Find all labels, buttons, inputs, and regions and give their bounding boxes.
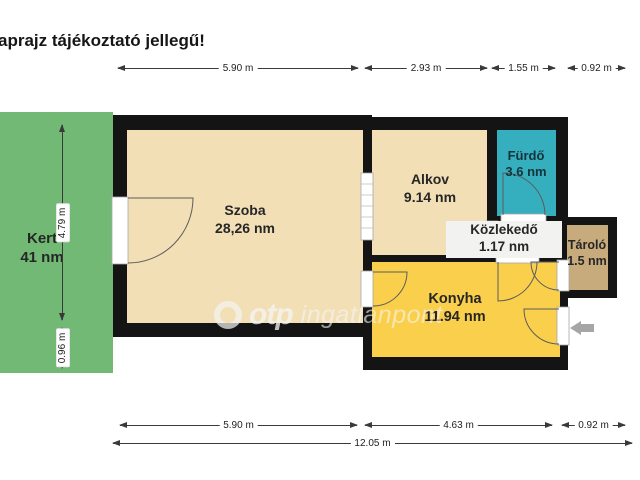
door-jamb-entrance: [557, 307, 569, 345]
door-swing-kert-szoba: [128, 198, 193, 263]
dim-top-3-label: 1.55 m: [504, 62, 543, 75]
furdo-name: Fürdő: [495, 148, 557, 164]
dim-total-label: 12.05 m: [350, 437, 394, 450]
dim-left-2-label: 0.96 m: [56, 329, 70, 368]
alkov-name: Alkov: [375, 171, 485, 189]
szoba-name: Szoba: [185, 202, 305, 220]
tarolo-area: 1.5 nm: [561, 254, 613, 270]
dim-bottom-2: 4.63 m: [365, 425, 552, 426]
dim-top-3: 1.55 m: [492, 68, 555, 69]
dim-left-1: 4.79 m: [62, 125, 63, 320]
tarolo-label: Tároló 1.5 nm: [561, 238, 613, 269]
dim-bottom-2-label: 4.63 m: [439, 419, 478, 432]
dim-left-1-label: 4.79 m: [56, 203, 70, 242]
door-jamb-szoba-konyha: [361, 271, 373, 307]
szoba-label: Szoba 28,26 nm: [185, 202, 305, 237]
dim-bottom-3: 0.92 m: [562, 425, 625, 426]
konyha-name: Konyha: [395, 290, 515, 308]
garden-area-value: 41 nm: [5, 249, 79, 268]
alkov-area: 9.14 nm: [375, 189, 485, 207]
dim-top-2-label: 2.93 m: [407, 62, 446, 75]
dim-top-4-label: 0.92 m: [577, 62, 616, 75]
opening-szoba-alkov: [361, 173, 373, 240]
kozlekedo-area: 1.17 nm: [446, 239, 562, 256]
alkov-label: Alkov 9.14 nm: [375, 171, 485, 206]
konyha-label: Konyha 11.94 nm: [395, 290, 515, 326]
door-swing-konyha-tarolo: [531, 262, 559, 290]
furdo-area: 3.6 nm: [495, 164, 557, 180]
furdo-label: Fürdő 3.6 nm: [495, 148, 557, 181]
dim-top-1-label: 5.90 m: [219, 62, 258, 75]
dim-bottom-1-label: 5.90 m: [219, 419, 258, 432]
dim-top-4: 0.92 m: [568, 68, 625, 69]
kozlekedo-label: Közlekedő 1.17 nm: [446, 221, 562, 258]
dim-bottom-3-label: 0.92 m: [574, 419, 613, 432]
dim-top-1: 5.90 m: [118, 68, 358, 69]
tarolo-name: Tároló: [561, 238, 613, 254]
dim-top-2: 2.93 m: [365, 68, 487, 69]
szoba-area: 28,26 nm: [185, 220, 305, 238]
dim-left-2: 0.96 m: [62, 328, 63, 368]
entrance-arrow-icon: [570, 321, 594, 335]
konyha-area: 11.94 nm: [395, 308, 515, 326]
entrance-arrow-shaft: [581, 324, 594, 332]
door-jamb-kert-szoba: [112, 197, 128, 264]
dim-total-width: 12.05 m: [113, 443, 632, 444]
door-swing-entrance: [524, 309, 559, 344]
floor-plan-canvas: aprajz tájékoztató jellegű!: [0, 0, 640, 480]
dim-bottom-1: 5.90 m: [120, 425, 357, 426]
entrance-arrow-head: [570, 321, 581, 335]
kozlekedo-name: Közlekedő: [446, 222, 562, 239]
